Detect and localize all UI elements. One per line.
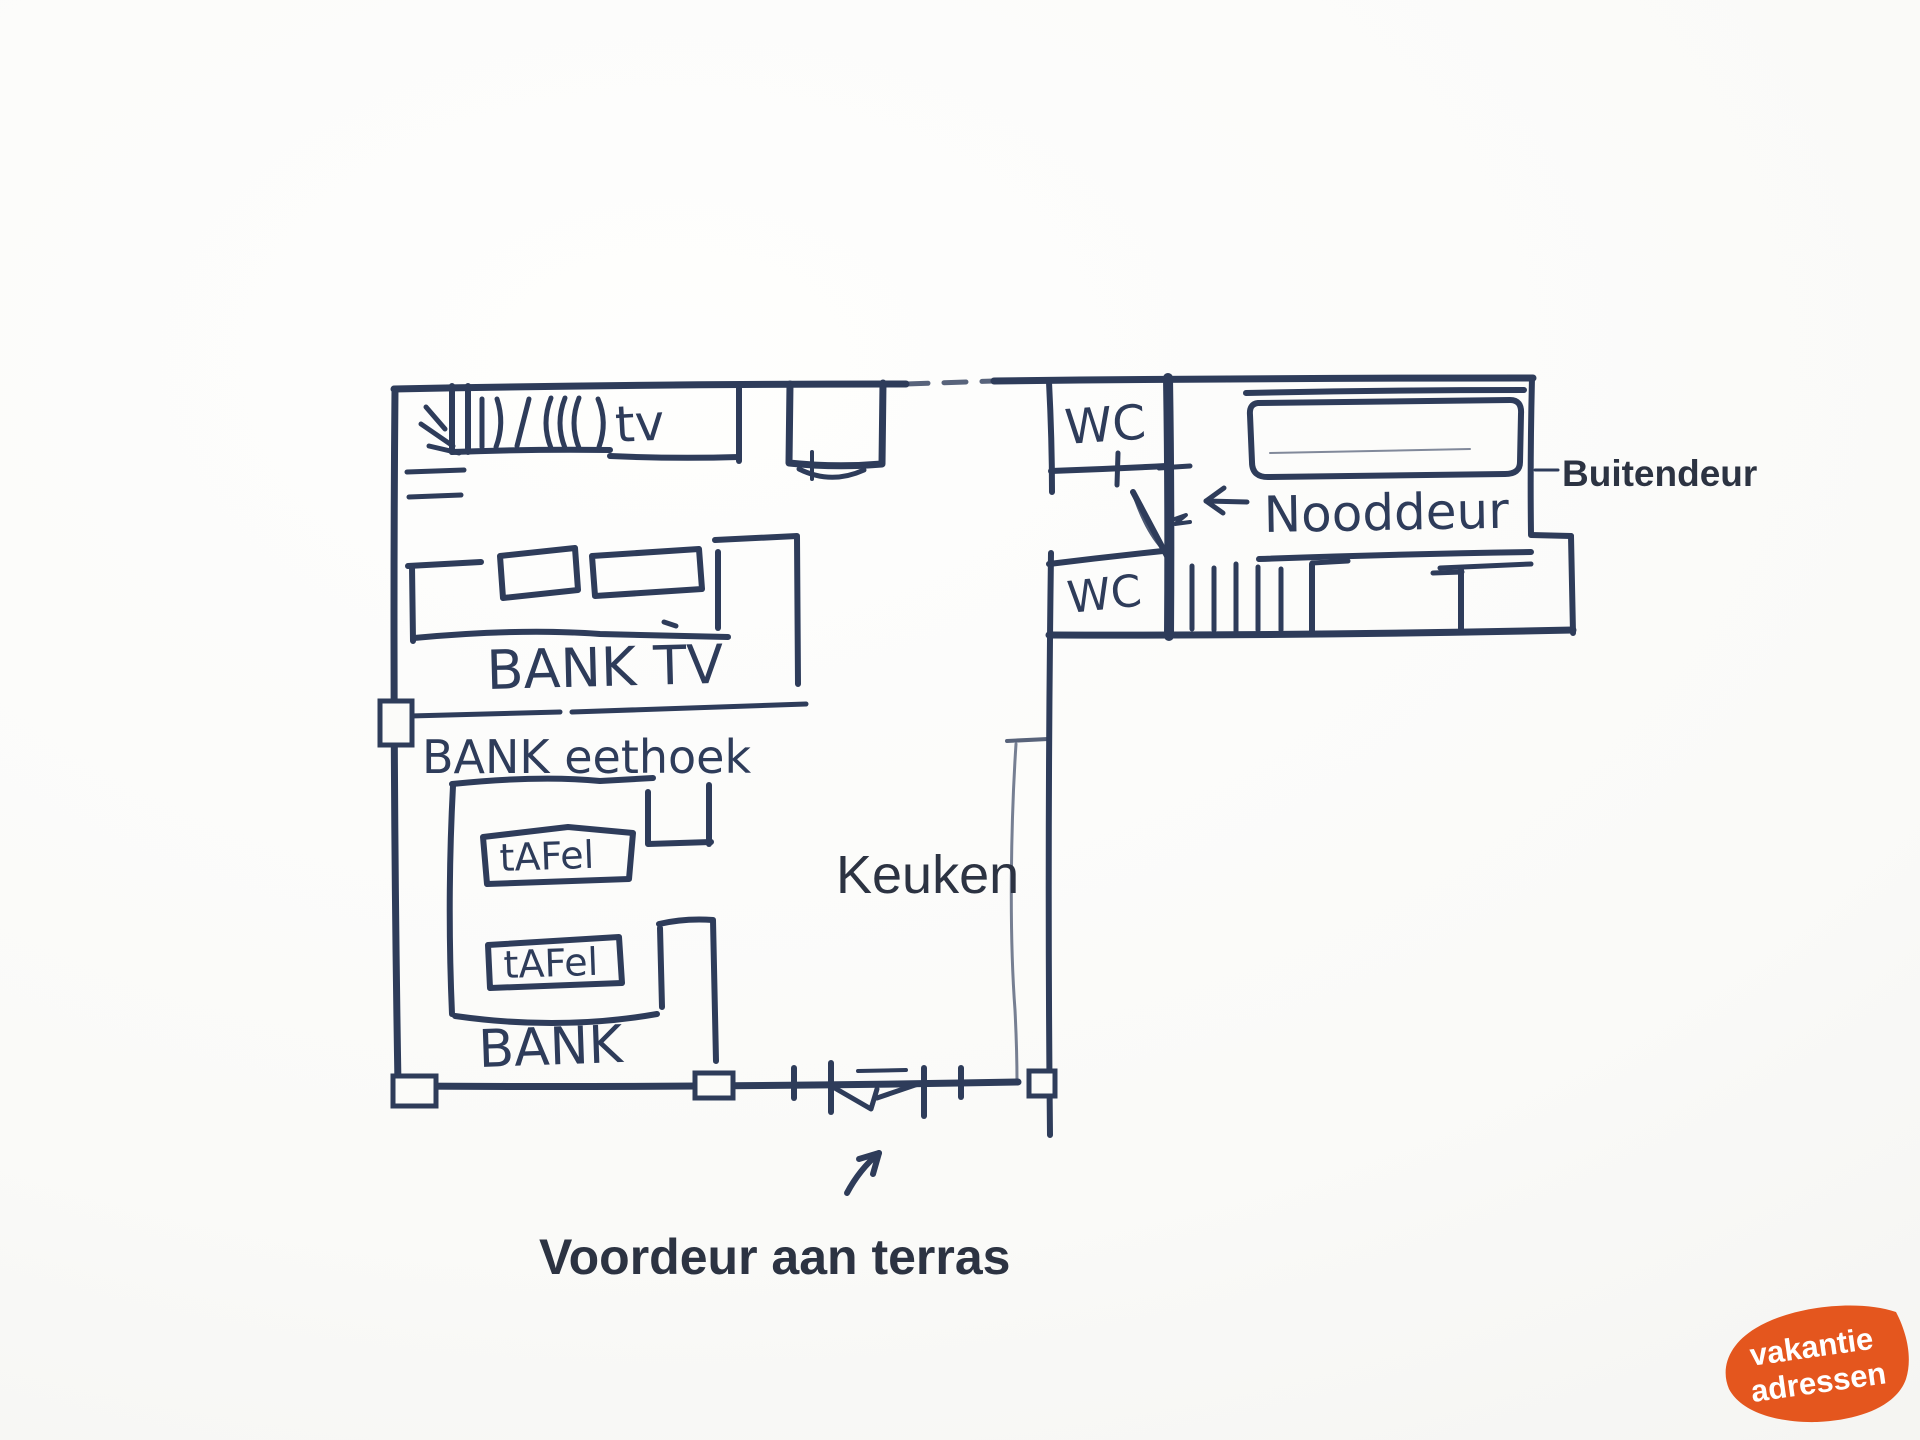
cupboard-top-line <box>1440 564 1531 568</box>
top-wall-right <box>994 378 1533 381</box>
right-wall-upper <box>1531 378 1532 534</box>
hall-closet <box>1246 390 1524 477</box>
floorplan-drawing: tv WC WC Nooddeur BANK TV BANK eethoek t… <box>0 0 1920 1440</box>
wall-marker-corner <box>393 1076 436 1106</box>
bank-eethoek-label: BANK eethoek <box>422 730 751 784</box>
staircase <box>1192 561 1348 632</box>
sofa-left-edge <box>412 566 413 641</box>
sofa-cushion-2 <box>592 549 702 596</box>
tafel-1-label: tAFel <box>499 833 595 880</box>
divider-line-right <box>572 704 806 712</box>
bank-label: BANK <box>477 1015 625 1080</box>
front-door <box>794 1063 961 1116</box>
tv-cabinet <box>452 385 739 461</box>
divider-line-left <box>410 712 560 716</box>
wc-bottom-top-wall <box>1049 551 1163 564</box>
tv-label: tv <box>614 393 666 453</box>
wc-bottom-label: WC <box>1065 565 1144 623</box>
hatch-stroke-4 <box>407 470 464 472</box>
wc-top-bottom-wall <box>1051 466 1166 471</box>
corner-hatch <box>407 407 464 497</box>
counter-line <box>1011 744 1017 1082</box>
hatch-stroke-2 <box>421 424 453 446</box>
room-divider <box>410 704 806 716</box>
tv-squiggle-3 <box>517 399 529 446</box>
tv-squiggle-5 <box>560 398 565 448</box>
buitendeur-jog-wall <box>1531 535 1571 536</box>
sofa-small-dash <box>664 622 676 626</box>
voordeur-label: Voordeur aan terras <box>539 1229 1010 1285</box>
tv-cabinet-bottom-left <box>452 450 610 452</box>
wc-top-door-tick <box>1117 453 1118 485</box>
keuken-label: Keuken <box>836 845 1019 905</box>
bench-left-edge <box>450 786 453 1014</box>
nooddeur-door <box>1133 492 1190 556</box>
chair-2-back <box>659 920 716 1062</box>
sofa-cushion-1 <box>500 548 578 598</box>
tv-squiggle-7 <box>598 399 603 447</box>
vakantieadressen-logo: vakantie adressen <box>1726 1305 1909 1422</box>
kitchen-east-wall-upper <box>1049 382 1052 492</box>
tafel-2-label: tAFel <box>503 940 599 987</box>
closet-body <box>1250 400 1521 477</box>
bank-tv-label: BANK TV <box>486 633 725 702</box>
chair-1-seat <box>648 792 711 844</box>
hall-thick-wall <box>1168 378 1169 636</box>
nooddeur-label: Nooddeur <box>1263 482 1509 544</box>
wall-marker-bottom <box>695 1073 733 1098</box>
closet-outer-top <box>1246 390 1524 393</box>
nooddeur-arrow-shaft <box>1206 501 1247 502</box>
stair-divider-tick <box>1312 561 1348 563</box>
hatch-stroke-5 <box>409 495 461 497</box>
tv-squiggle-6 <box>574 398 579 448</box>
top-center-cabinet <box>789 383 883 479</box>
top-wall-opening <box>906 381 994 384</box>
cupboard-tick <box>1433 572 1462 573</box>
right-wall-lower <box>1571 536 1573 633</box>
wall-marker-kitchen <box>1029 1071 1055 1096</box>
stair-strip-top-wall <box>1259 552 1531 559</box>
closet-pencil-line <box>1270 449 1470 453</box>
chair-2-side <box>660 928 662 1007</box>
hall-cupboard <box>1433 564 1531 630</box>
sofa-chaise-top <box>715 536 797 540</box>
door-lintel <box>858 1070 906 1071</box>
counter-top-tick <box>1007 739 1048 741</box>
wc-top-label: WC <box>1063 394 1148 456</box>
door-zigzag-1 <box>833 1087 877 1109</box>
tv-squiggle-2 <box>496 399 501 447</box>
nooddeur-door-squiggle <box>1172 515 1190 524</box>
buitendeur-label: Buitendeur <box>1562 453 1757 494</box>
cabinet-arc <box>799 469 864 477</box>
kitchen-counter <box>1007 739 1048 1082</box>
wall-crossing-tick <box>1159 466 1190 468</box>
wall-marker-left <box>380 701 412 745</box>
sofa-chaise-right <box>797 537 798 684</box>
sofa-top-edge <box>408 562 481 566</box>
kitchen-east-wall-lower <box>1049 553 1051 1135</box>
tv-cabinet-bottom-right <box>610 456 739 458</box>
paper-background: tv WC WC Nooddeur BANK TV BANK eethoek t… <box>0 0 1920 1440</box>
tv-squiggle-4 <box>546 398 551 448</box>
cabinet-box <box>789 383 883 466</box>
hatch-stroke-1 <box>426 407 445 429</box>
